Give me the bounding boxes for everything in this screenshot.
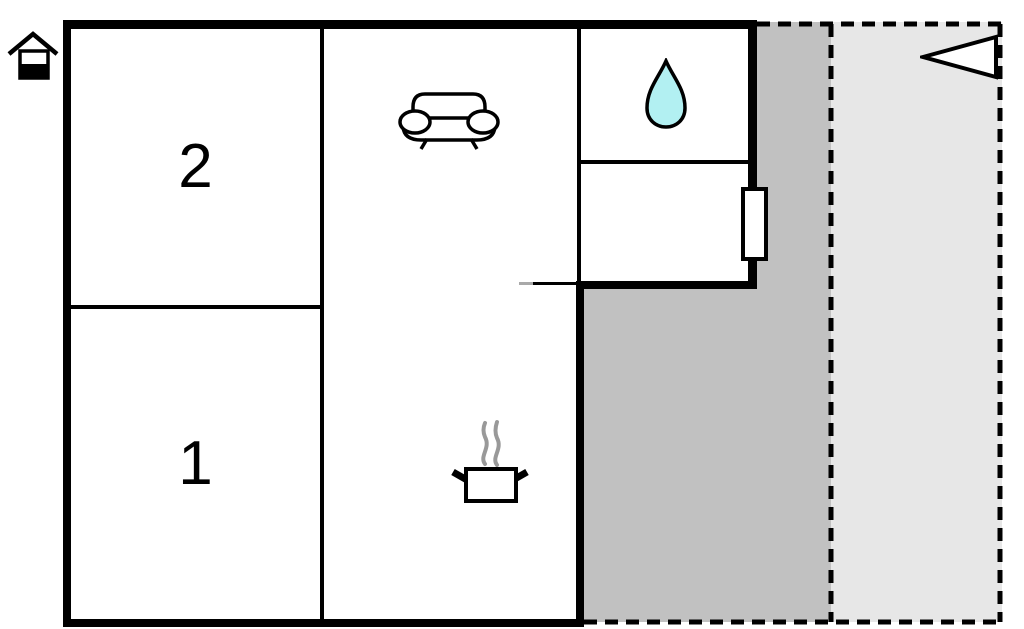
entrance-door [741,187,768,261]
room-1: 1 [71,309,320,619]
patio-area [831,22,1002,622]
north-arrow-icon [920,34,1000,80]
wall-exterior-top [64,20,757,29]
room-2: 2 [71,29,320,305]
room-1-label: 1 [178,433,212,495]
wall-hall-terrace [576,281,757,289]
sofa-icon [397,85,501,151]
wall-bath-bottom [581,160,748,164]
steam-icon [483,423,486,464]
wall-kitchen-terrace [576,281,584,627]
cooking-pot-icon [449,418,531,504]
terrace-main-area [584,283,831,622]
wall-exterior-bottom [63,619,584,627]
room-2-label: 2 [178,136,212,198]
wall-bath-left [577,29,581,281]
wall-opening-marker [533,282,576,285]
wall-living-left [320,29,324,619]
house-icon [6,30,60,82]
wall-exterior-left [63,20,71,627]
wall-opening-marker-end [519,282,533,285]
floorplan-canvas: 2 1 [0,0,1024,629]
wall-bedroom-divider [71,305,322,309]
water-drop-icon [643,58,689,130]
steam-icon [495,422,498,465]
